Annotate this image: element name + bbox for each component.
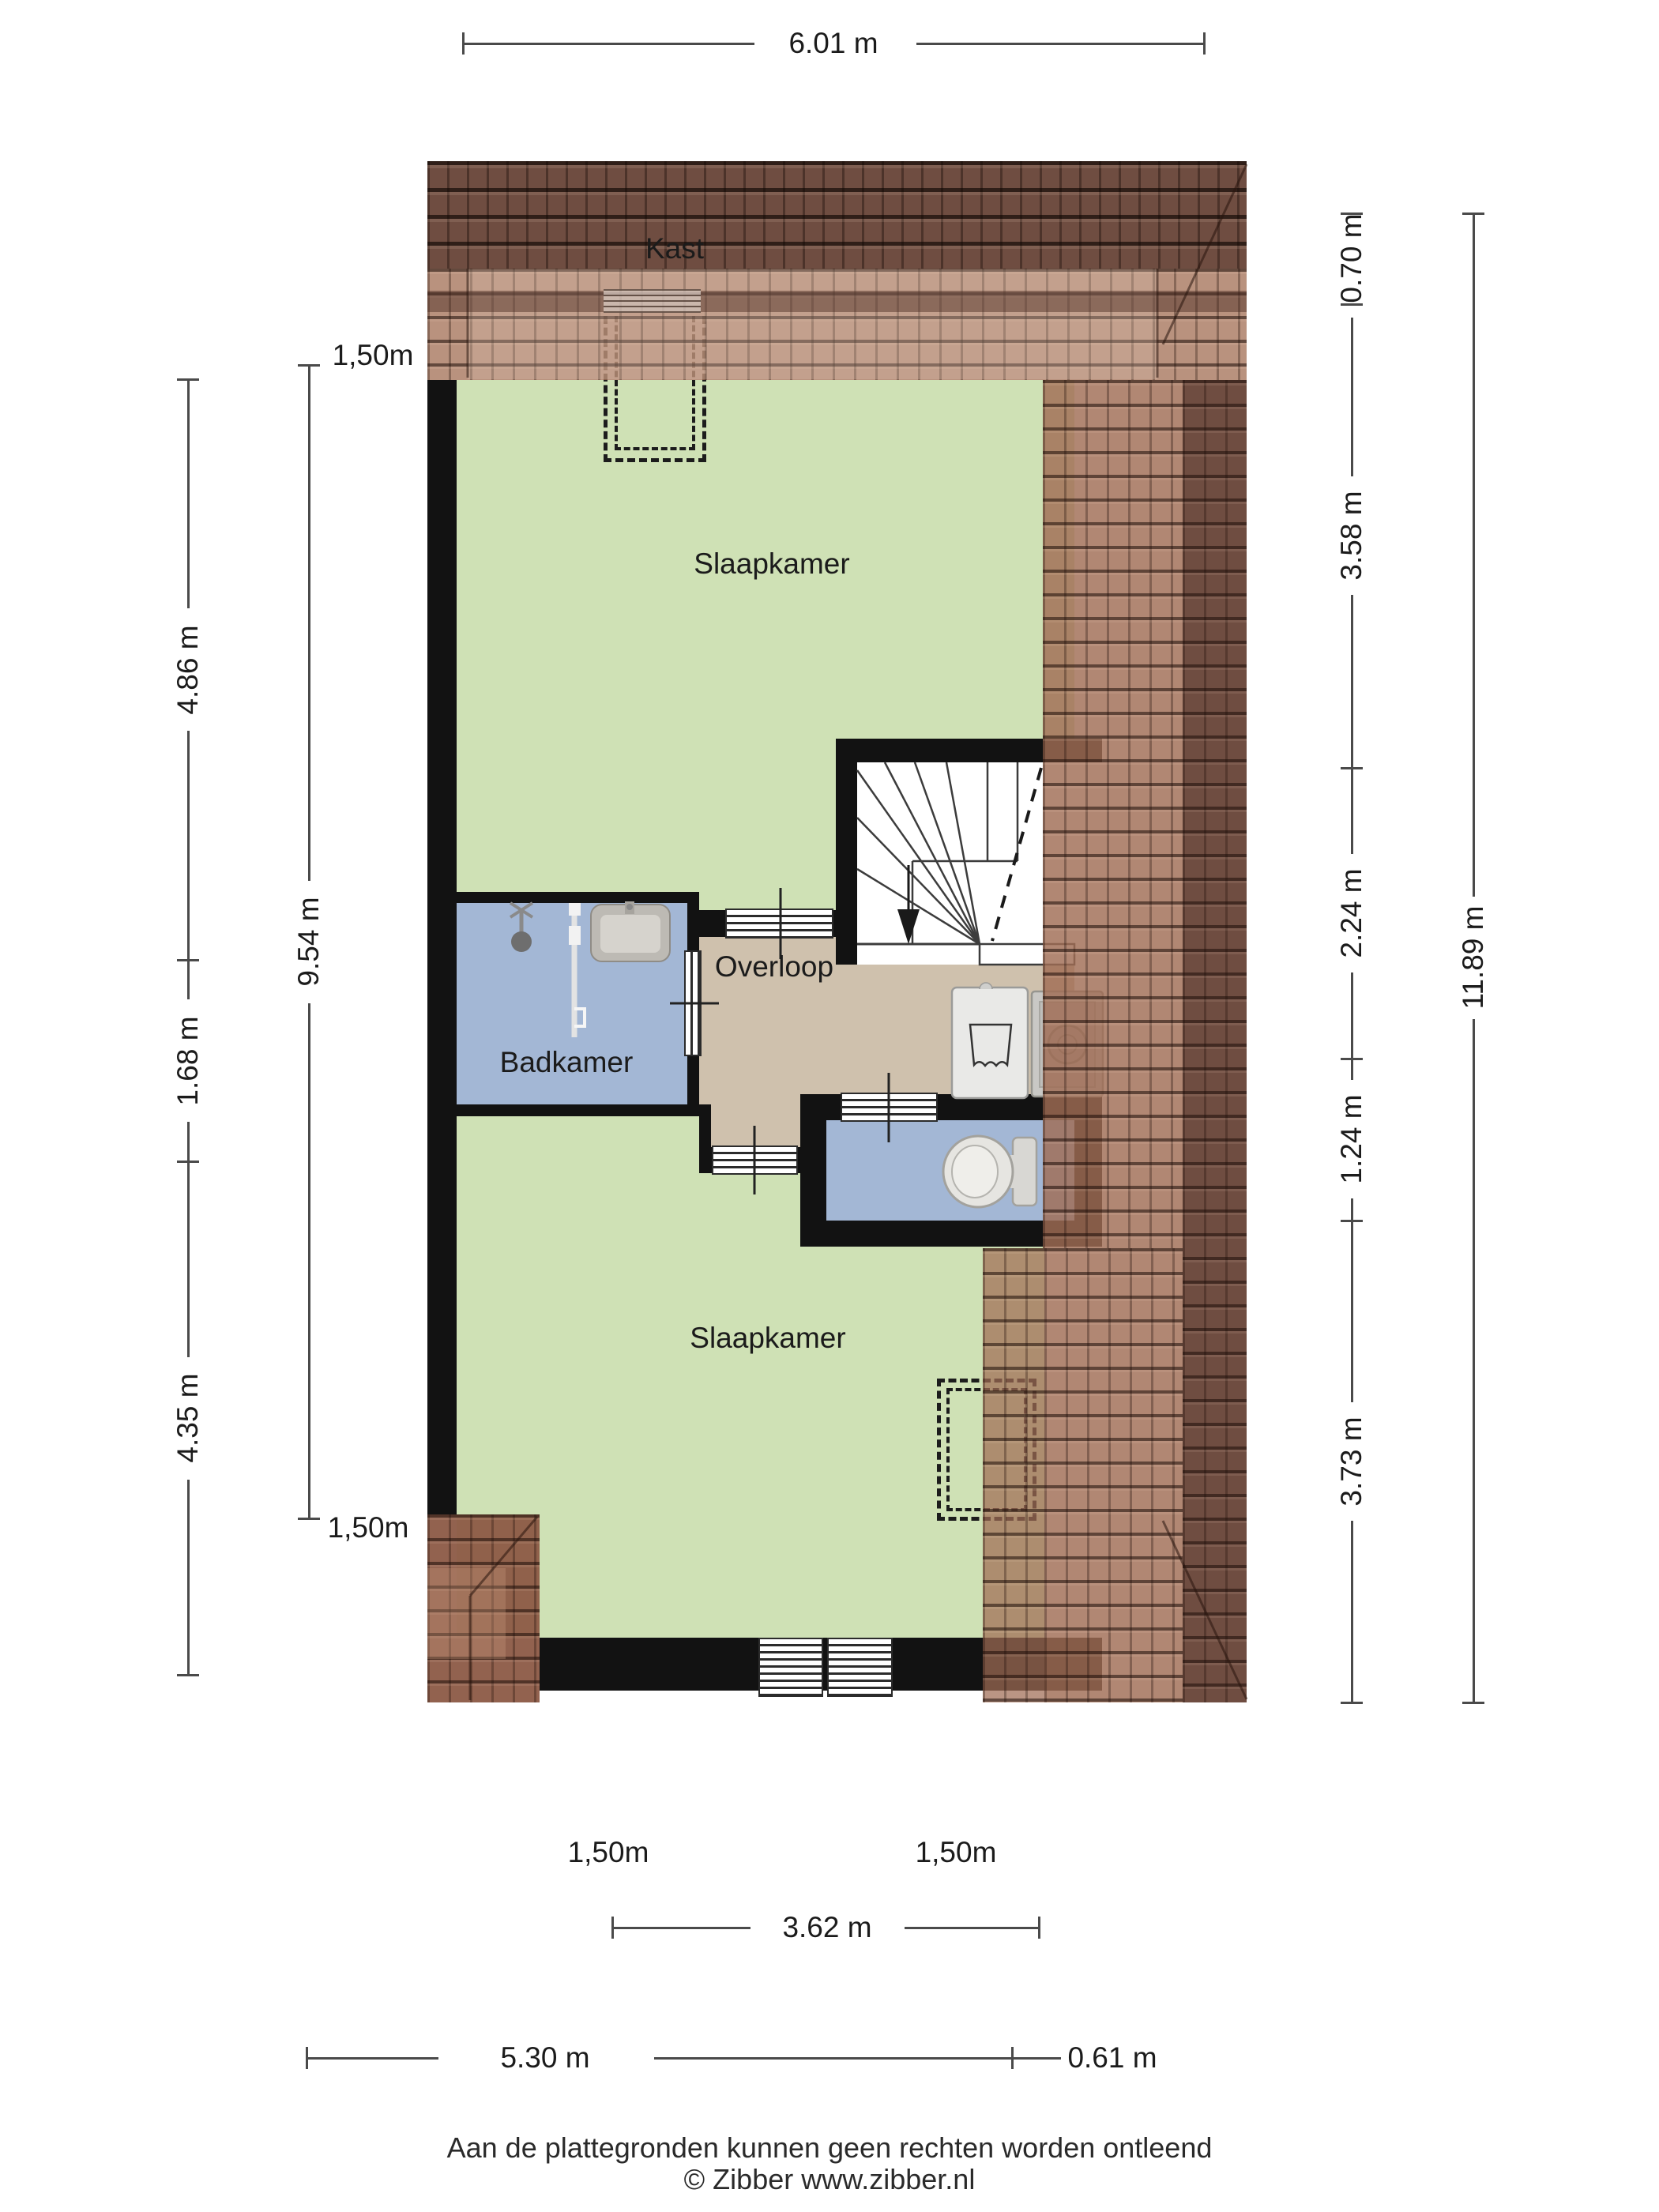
dim-left-total: 9.54 m [292,875,326,1009]
dim-right-seg2: 3.58 m [1334,468,1369,603]
dim-bot-a1 [612,1927,750,1929]
dim-right-b2 [1473,1019,1475,1702]
dim-top-line-a [463,43,754,45]
dim-right-seg4: 1.24 m [1334,1072,1369,1206]
dim-left-tick2 [177,959,199,961]
dim-left-a5 [187,1161,190,1357]
dim-right-a2 [1351,595,1353,854]
dim-left-a1 [187,379,190,608]
dim-bot-b-tick1 [306,2047,308,2069]
dim-right-a4 [1351,1198,1353,1402]
dim-right-seg3: 2.24 m [1334,846,1369,980]
dim-left-b2 [308,1003,310,1518]
dim-bot-a-tick1 [611,1917,614,1939]
dim-top-line-b [916,43,1204,45]
dim-top-label: 6.01 m [788,27,878,60]
dim-bottom-outer: 5.30 m [500,2041,589,2075]
label-slaapkamer-top: Slaapkamer [694,547,849,581]
dim-left-tick4 [177,1674,199,1676]
dim-bot-a2 [905,1927,1039,1929]
dim-right-total: 11.89 m [1456,890,1491,1025]
dim-left-seg2: 1.68 m [171,994,205,1128]
dim-right-a3 [1351,972,1353,1080]
dim-left-tick3 [177,1161,199,1163]
dim-top-tick-r [1203,32,1206,55]
roof-hip-lines [0,0,1659,2212]
dim-left-a6 [187,1480,190,1675]
dim-bot-b1 [307,2057,438,2060]
dim-bot-a-tick2 [1038,1917,1040,1939]
dim-left-seg3: 4.35 m [171,1351,205,1485]
dim-right-seg1: 0.70 m [1334,191,1369,325]
clearance-top-left: 1,50m [333,339,414,372]
dim-right-b-tick2 [1462,1702,1484,1704]
dim-right-b-tick1 [1462,213,1484,215]
dim-left-seg1: 4.86 m [171,603,205,737]
dim-right-a1 [1351,318,1353,476]
dim-left-b1 [308,365,310,881]
dim-right-b1 [1473,213,1475,897]
floorplan-canvas: Kast Slaapkamer Badkamer Overloop Slaapk… [0,0,1659,2212]
dim-left-b-tick2 [298,1518,320,1520]
dim-left-b-tick1 [298,364,320,367]
label-badkamer: Badkamer [500,1046,634,1079]
dim-bot-b3 [1012,2057,1061,2060]
dim-top-tick-l [462,32,465,55]
dim-bottom-offset: 0.61 m [1067,2041,1157,2075]
dim-right-tick3 [1341,767,1363,769]
dim-right-tick5 [1341,1220,1363,1222]
footer-disclaimer: Aan de plattegronden kunnen geen rechten… [0,2131,1659,2165]
clearance-bottom-center-left: 1,50m [568,1836,649,1869]
dim-right-tick4 [1341,1058,1363,1060]
clearance-bottom-left: 1,50m [328,1511,409,1544]
dim-right-seg5: 3.73 m [1334,1394,1369,1529]
label-kast: Kast [645,232,704,265]
footer-credit: © Zibber www.zibber.nl [0,2163,1659,2196]
dim-bot-b-tick2 [1011,2047,1014,2069]
label-slaapkamer-bottom: Slaapkamer [690,1322,845,1355]
dim-left-tick1 [177,378,199,381]
dim-right-a5 [1351,1521,1353,1702]
dim-bottom-inner: 3.62 m [782,1911,871,1944]
clearance-bottom-center-right: 1,50m [916,1836,997,1869]
dim-left-a2 [187,731,190,960]
dim-bot-b2 [654,2057,1012,2060]
label-overloop: Overloop [715,950,833,984]
dim-right-tick6 [1341,1702,1363,1704]
